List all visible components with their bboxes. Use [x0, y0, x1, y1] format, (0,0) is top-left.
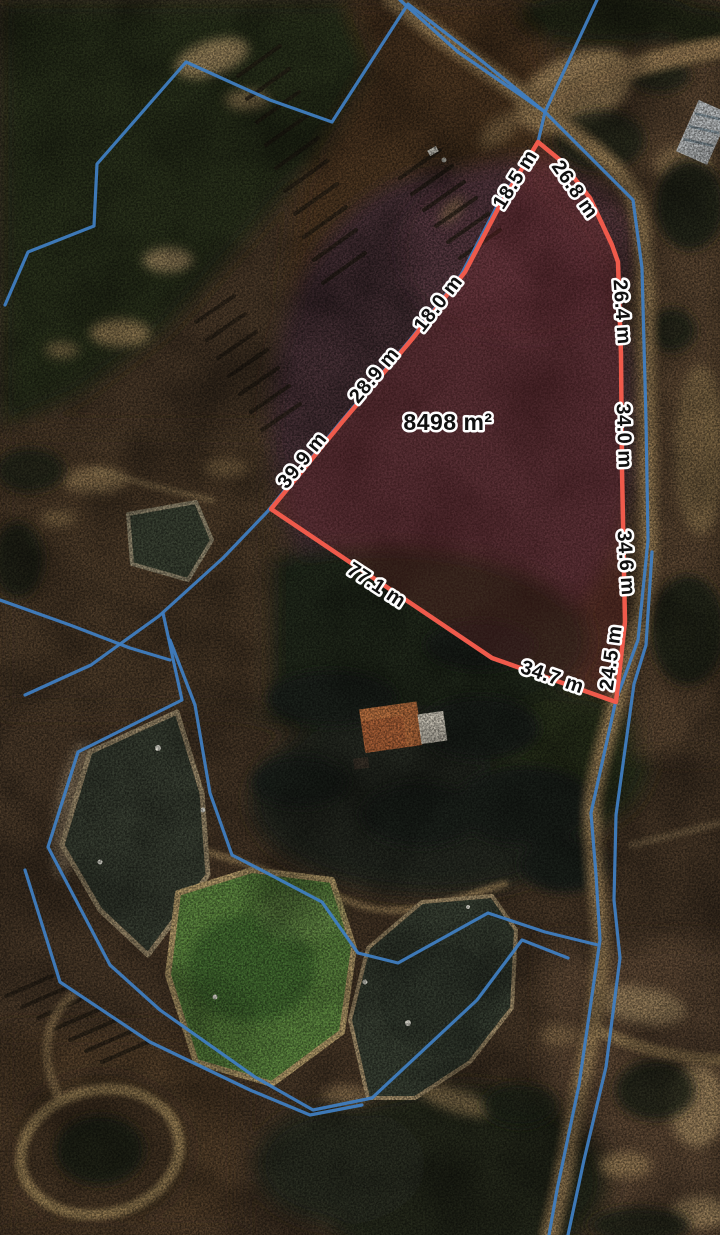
area-label: 8498 m²: [403, 409, 492, 435]
segment-length-label: 34.6 m: [612, 530, 638, 597]
segment-length-label: 26.4 m: [608, 279, 634, 346]
segment-length-label: 34.0 m: [612, 403, 636, 469]
map-canvas[interactable]: 18.5 m26.8 m26.4 m34.0 m34.6 m24.5 m34.7…: [0, 0, 720, 1235]
satellite-map[interactable]: 18.5 m26.8 m26.4 m34.0 m34.6 m24.5 m34.7…: [0, 0, 720, 1235]
